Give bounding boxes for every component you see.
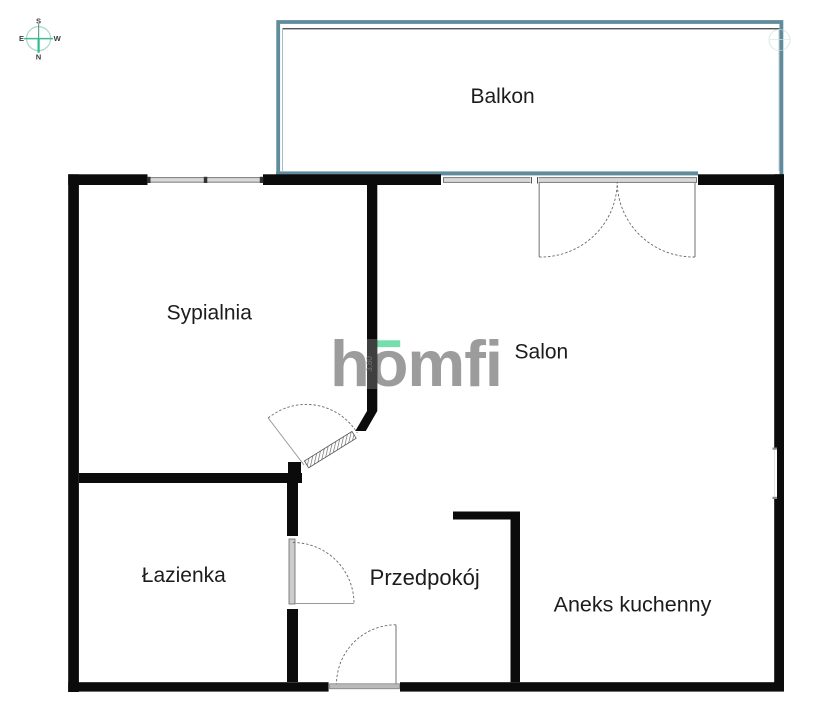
svg-text:Aneks kuchenny: Aneks kuchenny — [554, 593, 712, 617]
svg-text:S: S — [36, 16, 41, 25]
svg-text:Balkon: Balkon — [470, 85, 534, 108]
svg-text:Przedpokój: Przedpokój — [370, 565, 480, 590]
svg-text:homfi: homfi — [330, 327, 502, 400]
svg-text:W: W — [54, 34, 62, 43]
svg-text:N: N — [36, 52, 41, 61]
svg-text:Sypialnia: Sypialnia — [167, 302, 253, 325]
svg-text:3,80: 3,80 — [365, 356, 374, 372]
svg-text:Salon: Salon — [515, 341, 569, 364]
svg-text:Łazienka: Łazienka — [142, 564, 226, 587]
svg-text:E: E — [19, 34, 24, 43]
